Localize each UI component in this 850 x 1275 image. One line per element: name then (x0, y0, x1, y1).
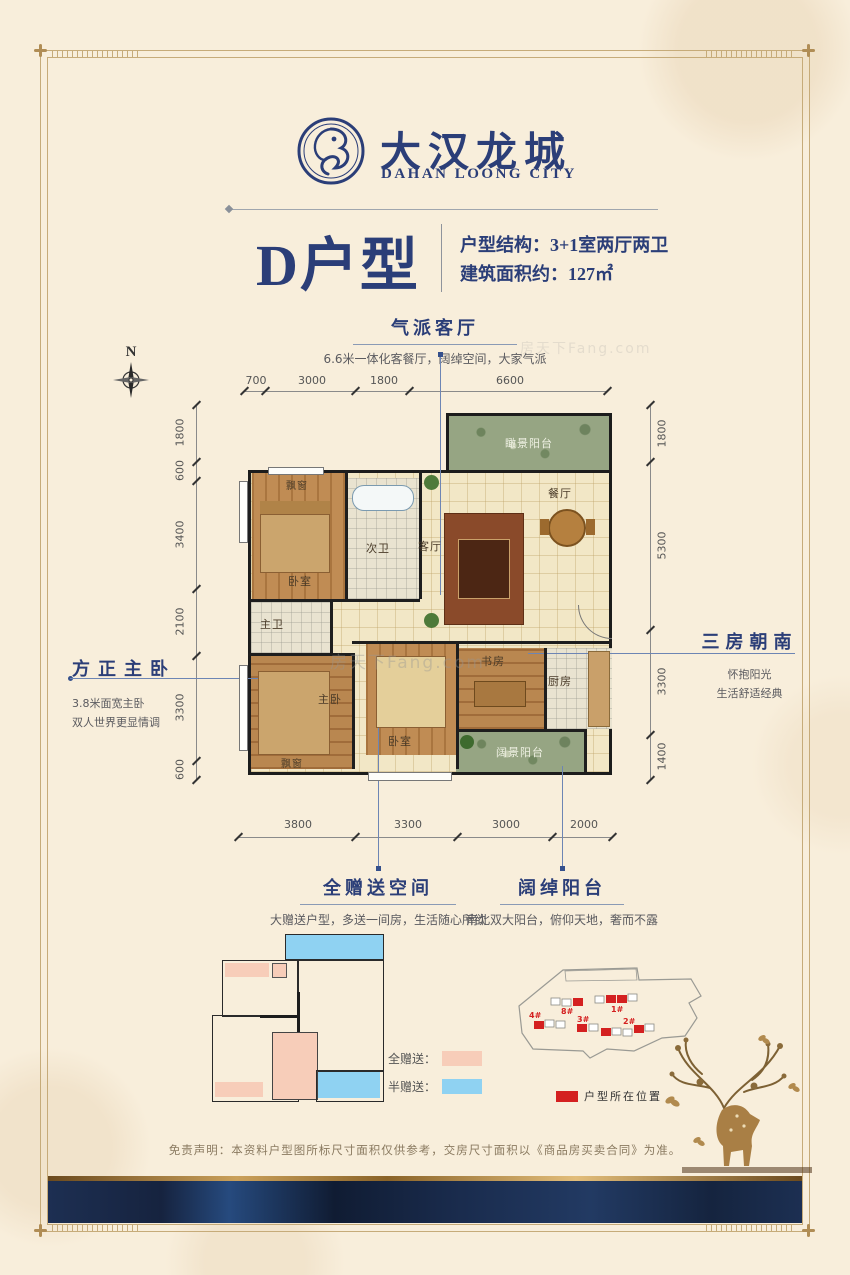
bay-window (239, 665, 248, 751)
dragon-emblem-icon (296, 116, 366, 186)
mini-full-gift (272, 963, 287, 978)
callout-master-desc1: 3.8米面宽主卧 (72, 695, 242, 711)
dining-chair (586, 519, 595, 535)
dim-label: 700 (234, 374, 278, 387)
disclaimer: 免责声明：本资料户型图所标尺寸面积仅供参考，交房尺寸面积以《商品房买卖合同》为准… (0, 1142, 850, 1158)
site-legend-swatch (556, 1091, 578, 1102)
callout-balcony-title: 阔绰阳台 (500, 874, 624, 905)
room-label-living: 客厅 (418, 538, 442, 554)
frame-hatch (706, 1224, 796, 1231)
wall (345, 470, 348, 599)
building-label: 3# (577, 1015, 590, 1024)
room-label-bath-master: 主卫 (260, 616, 284, 632)
wall (584, 729, 587, 772)
mini-full-gift (225, 963, 269, 977)
compass-n-label: N (112, 344, 150, 361)
callout-south-title: 三房朝南 (692, 628, 807, 654)
room-label-bay-bottom: 飘窗 (281, 755, 303, 770)
frame-corner-ornament (34, 44, 47, 57)
mini-half-gift-top (285, 934, 384, 960)
room-label-balcony-top: 瞰景阳台 (505, 435, 553, 451)
wall (419, 470, 422, 599)
compass: N (112, 344, 150, 398)
room-balcony-top: 瞰景阳台 (446, 413, 612, 473)
frame-hatch (52, 50, 142, 57)
building-label: 8# (561, 1007, 574, 1016)
gift-legend-full: 全赠送： (388, 1050, 482, 1067)
watermark: 房天下Fang.com (520, 338, 651, 358)
gift-legend-full-label: 全赠送： (388, 1050, 436, 1067)
brochure-page: { "brand": { "emblem": "dragon-seal-embl… (0, 0, 850, 1275)
unit-name: D户型 (256, 218, 420, 302)
unit-spec-area: 建筑面积约：127㎡ (460, 260, 613, 286)
wall (248, 599, 420, 602)
bathtub (352, 485, 414, 511)
dim-label: 5300 (656, 524, 669, 568)
unit-header-vline (441, 224, 442, 292)
building-label: 1# (611, 1005, 624, 1014)
desk (474, 681, 526, 707)
callout-living-title: 气派客厅 (353, 314, 517, 345)
bay-window (368, 772, 452, 781)
callout-master-desc2: 双人世界更显情调 (72, 714, 242, 730)
dim-label: 3300 (656, 660, 669, 704)
gift-legend-half-swatch (442, 1079, 482, 1094)
room-label-bay-top: 飘窗 (286, 477, 308, 492)
bed (258, 671, 330, 755)
room-balcony-bottom: 阔景阳台 (456, 732, 584, 772)
header-divider (228, 209, 658, 210)
building-label: 2# (623, 1017, 636, 1026)
watermark: 房天下Fang.com (330, 648, 485, 673)
frame-hatch (52, 1224, 142, 1231)
dim-label: 600 (174, 449, 187, 493)
callout-master: 方正主卧 3.8米面宽主卧 双人世界更显情调 (72, 655, 242, 730)
callout-living: 气派客厅 6.6米一体化客餐厅，阔绰空间，大家气派 (335, 314, 535, 367)
dim-label: 3000 (484, 818, 528, 831)
gift-legend-half-label: 半赠送： (388, 1078, 436, 1095)
dim-label: 2000 (562, 818, 606, 831)
callout-master-title: 方正主卧 (72, 655, 242, 681)
wall (352, 641, 612, 644)
plant (424, 613, 439, 628)
frame-corner-ornament (802, 1224, 815, 1237)
mini-full-gift-center (272, 1032, 318, 1100)
brand-emblem (296, 116, 366, 186)
brand-name-en: DAHAN LOONG CITY (381, 166, 577, 183)
dim-label: 600 (174, 748, 187, 792)
mini-wall (260, 1015, 300, 1018)
callout-gift-title: 全赠送空间 (300, 874, 456, 905)
dining-table (548, 509, 586, 547)
gift-legend-half: 半赠送： (388, 1078, 482, 1095)
room-label-kitchen: 厨房 (548, 673, 572, 689)
wall (544, 648, 547, 729)
bay-window (239, 481, 248, 543)
callout-south: 三房朝南 怀抱阳光 生活舒适经典 (692, 628, 807, 701)
callout-south-desc1: 怀抱阳光 (692, 666, 807, 682)
building-label: 4# (529, 1011, 542, 1020)
room-label-dining: 餐厅 (548, 485, 572, 501)
footer-night-band (48, 1181, 802, 1223)
callout-balcony: 阔绰阳台 南北双大阳台，俯仰天地，奢而不露 (472, 874, 652, 928)
dim-label: 3400 (174, 513, 187, 557)
mini-half-gift-bottom (318, 1072, 380, 1098)
dining-chair (540, 519, 549, 535)
wall (330, 599, 333, 653)
dim-label: 1800 (362, 374, 406, 387)
kitchen-counter (588, 651, 610, 727)
callout-balcony-desc: 南北双大阳台，俯仰天地，奢而不露 (448, 911, 676, 928)
window (268, 467, 324, 475)
dim-label: 3000 (290, 374, 334, 387)
room-label-bedroom-second: 卧室 (388, 733, 412, 749)
bed-pillows (260, 501, 330, 515)
compass-rose-icon (112, 361, 150, 399)
dim-label: 3300 (386, 818, 430, 831)
frame-corner-ornament (802, 44, 815, 57)
frame-hatch (706, 50, 796, 57)
plant (460, 735, 474, 749)
floor-plan: 瞰景阳台 阔景阳台 飘窗 卧室 次卫 客厅 餐厅 主卫 主卧 飘窗 卧 (248, 413, 614, 788)
frame-corner-ornament (34, 1224, 47, 1237)
room-label-bedroom-master: 主卧 (318, 691, 342, 707)
dim-label: 1400 (656, 735, 669, 779)
dim-label: 3800 (276, 818, 320, 831)
rug (458, 539, 510, 599)
wall (456, 729, 587, 732)
room-label-balcony-bottom: 阔景阳台 (496, 744, 544, 760)
mini-full-gift (215, 1082, 263, 1097)
room-label-bedroom-top: 卧室 (288, 573, 312, 589)
dim-label: 6600 (488, 374, 532, 387)
mini-wall (297, 992, 300, 1032)
room-label-bath-second: 次卫 (366, 540, 390, 556)
gift-legend-full-swatch (442, 1051, 482, 1066)
dim-label: 1800 (656, 412, 669, 456)
callout-south-desc2: 生活舒适经典 (692, 685, 807, 701)
unit-spec-structure: 户型结构：3+1室两厅两卫 (460, 231, 668, 257)
dim-label: 2100 (174, 600, 187, 644)
plant (424, 475, 439, 490)
